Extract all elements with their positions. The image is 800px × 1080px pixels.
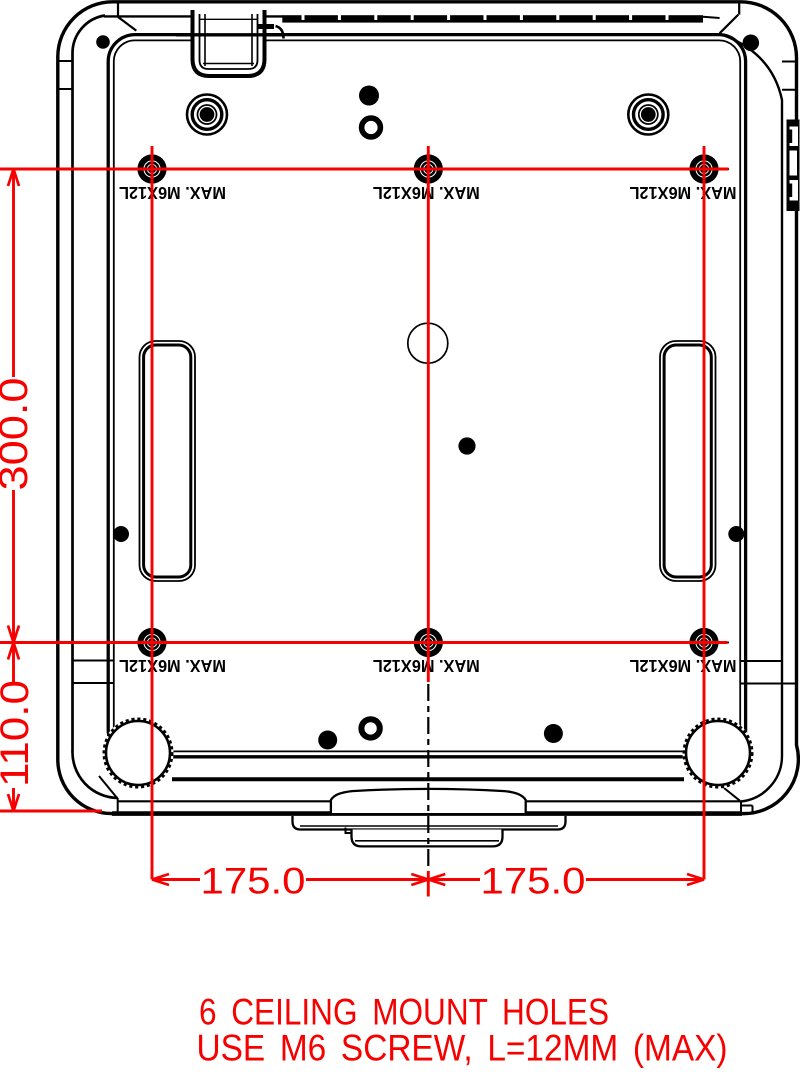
svg-text:175.0: 175.0 (481, 861, 586, 902)
svg-text:MAX. M6X12L: MAX. M6X12L (629, 183, 736, 203)
svg-text:MAX. M6X12L: MAX. M6X12L (629, 656, 736, 676)
svg-text:USE M6 SCREW, L=12MM (MAX): USE M6 SCREW, L=12MM (MAX) (197, 1028, 728, 1069)
svg-text:MAX. M6X12L: MAX. M6X12L (119, 183, 226, 203)
svg-text:MAX. M6X12L: MAX. M6X12L (373, 183, 480, 203)
svg-text:175.0: 175.0 (201, 861, 306, 902)
svg-text:MAX. M6X12L: MAX. M6X12L (373, 656, 480, 676)
svg-text:110.0: 110.0 (0, 680, 37, 787)
svg-text:MAX. M6X12L: MAX. M6X12L (119, 656, 226, 676)
svg-text:6 CEILING MOUNT HOLES: 6 CEILING MOUNT HOLES (199, 992, 609, 1033)
svg-text:300.0: 300.0 (0, 378, 36, 491)
